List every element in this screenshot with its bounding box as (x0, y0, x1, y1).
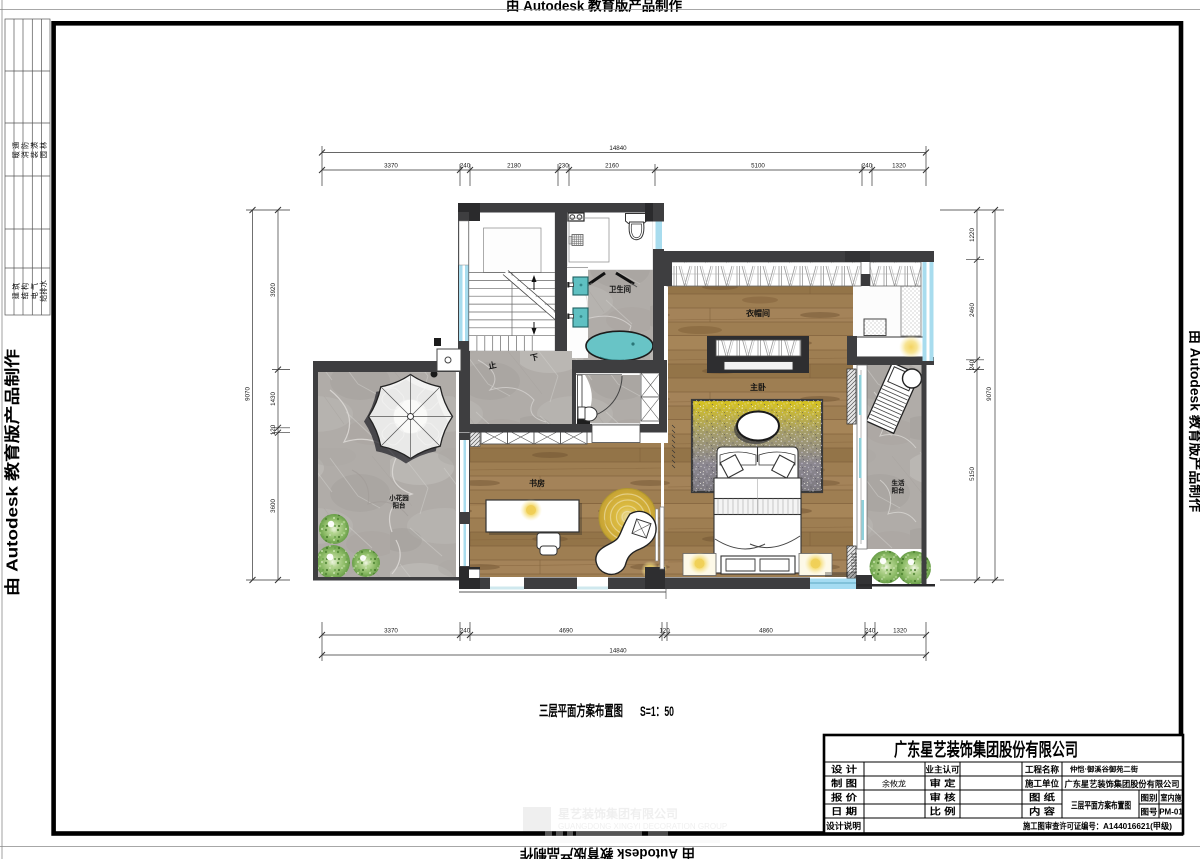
svg-text:240: 240 (460, 163, 471, 170)
svg-text:9070: 9070 (986, 387, 993, 401)
svg-text:装 潢: 装 潢 (30, 142, 39, 158)
svg-text:书房: 书房 (529, 478, 545, 488)
svg-text:240: 240 (969, 359, 976, 370)
svg-text:星艺装饰集团有限公司: 星艺装饰集团有限公司 (558, 806, 678, 821)
svg-text:GUANGDONG XINGYI DECORATION GR: GUANGDONG XINGYI DECORATION GROUP (558, 822, 727, 831)
svg-text:施工单位: 施工单位 (1025, 779, 1059, 789)
svg-text:1320: 1320 (893, 628, 907, 635)
svg-text:广东星艺装饰集团股份有限公司: 广东星艺装饰集团股份有限公司 (1065, 779, 1180, 789)
svg-text:由 Autodesk 教育版产品制作: 由 Autodesk 教育版产品制作 (3, 348, 22, 596)
svg-text:仲恺·御溪谷御苑二街: 仲恺·御溪谷御苑二街 (1070, 765, 1138, 774)
svg-text:240: 240 (865, 628, 876, 635)
svg-text:2180: 2180 (507, 163, 521, 170)
svg-text:暖 通: 暖 通 (12, 142, 21, 158)
svg-text:14840: 14840 (609, 145, 627, 152)
svg-text:1320: 1320 (892, 163, 906, 170)
svg-text:结 构: 结 构 (21, 283, 30, 299)
svg-text:5100: 5100 (751, 163, 765, 170)
svg-text:240: 240 (460, 628, 471, 635)
svg-text:4860: 4860 (759, 628, 773, 635)
svg-text:建 筑: 建 筑 (12, 283, 21, 299)
svg-text:日 期: 日 期 (831, 806, 857, 817)
svg-text:生活: 生活 (892, 478, 906, 487)
svg-text:三层平面方案布置图: 三层平面方案布置图 (1071, 800, 1131, 811)
svg-text:9070: 9070 (245, 387, 252, 401)
svg-text:比 例: 比 例 (930, 806, 956, 817)
svg-text:设计说明: 设计说明 (826, 821, 861, 831)
svg-text:园 林: 园 林 (39, 142, 48, 158)
svg-text:120: 120 (270, 424, 277, 435)
svg-text:广东星艺装饰集团股份有限公司: 广东星艺装饰集团股份有限公司 (894, 739, 1078, 760)
svg-text:由 Autodesk 教育版产品制作: 由 Autodesk 教育版产品制作 (506, 0, 682, 14)
svg-text:内 容: 内 容 (1029, 806, 1055, 817)
svg-text:3920: 3920 (270, 283, 277, 297)
svg-text:业主认可: 业主认可 (926, 765, 960, 775)
svg-text:A144016621(甲级): A144016621(甲级) (1103, 821, 1172, 831)
svg-text:报 价: 报 价 (831, 792, 858, 803)
svg-text:120: 120 (659, 628, 670, 635)
svg-text:主卧: 主卧 (750, 382, 766, 392)
svg-text:工程名称: 工程名称 (1025, 765, 1059, 775)
svg-text:衣帽间: 衣帽间 (746, 308, 770, 318)
svg-text:消 防: 消 防 (21, 142, 30, 158)
svg-text:图 纸: 图 纸 (1029, 792, 1055, 803)
svg-text:PM-01: PM-01 (1159, 808, 1183, 817)
svg-text:审 核: 审 核 (930, 792, 956, 803)
svg-text:阳台: 阳台 (393, 501, 407, 510)
svg-text:1430: 1430 (270, 392, 277, 406)
svg-text:余攸龙: 余攸龙 (882, 779, 906, 789)
svg-text:图号: 图号 (1141, 808, 1158, 817)
svg-text:5150: 5150 (969, 467, 976, 481)
svg-text:设 计: 设 计 (831, 764, 857, 775)
svg-text:施工图审查许可证编号：: 施工图审查许可证编号： (1023, 821, 1103, 831)
svg-text:240: 240 (862, 163, 873, 170)
svg-text:3370: 3370 (384, 163, 398, 170)
svg-text:3600: 3600 (270, 499, 277, 513)
svg-text:电 气: 电 气 (30, 283, 39, 299)
svg-text:图别: 图别 (1141, 794, 1158, 803)
svg-text:给排水: 给排水 (39, 280, 48, 302)
svg-text:由 Autodesk 教育版产品制作: 由 Autodesk 教育版产品制作 (520, 846, 695, 859)
svg-text:审 定: 审 定 (930, 778, 957, 789)
svg-text:室内施: 室内施 (1161, 793, 1182, 803)
svg-text:2160: 2160 (605, 163, 619, 170)
svg-text:2460: 2460 (969, 303, 976, 317)
svg-text:14840: 14840 (609, 648, 627, 655)
svg-text:卫生间: 卫生间 (609, 284, 631, 294)
svg-text:小花园: 小花园 (388, 493, 409, 502)
svg-text:阳台: 阳台 (892, 486, 906, 495)
svg-text:三层平面方案布置图: 三层平面方案布置图 (539, 702, 623, 720)
svg-text:1220: 1220 (969, 228, 976, 242)
svg-text:由 Autodesk 教育版产品制作: 由 Autodesk 教育版产品制作 (1188, 330, 1200, 513)
svg-text:S=1：50: S=1：50 (640, 704, 674, 719)
svg-text:230: 230 (558, 163, 569, 170)
svg-text:4690: 4690 (559, 628, 573, 635)
svg-text:制 图: 制 图 (831, 778, 857, 789)
svg-text:3370: 3370 (384, 628, 398, 635)
